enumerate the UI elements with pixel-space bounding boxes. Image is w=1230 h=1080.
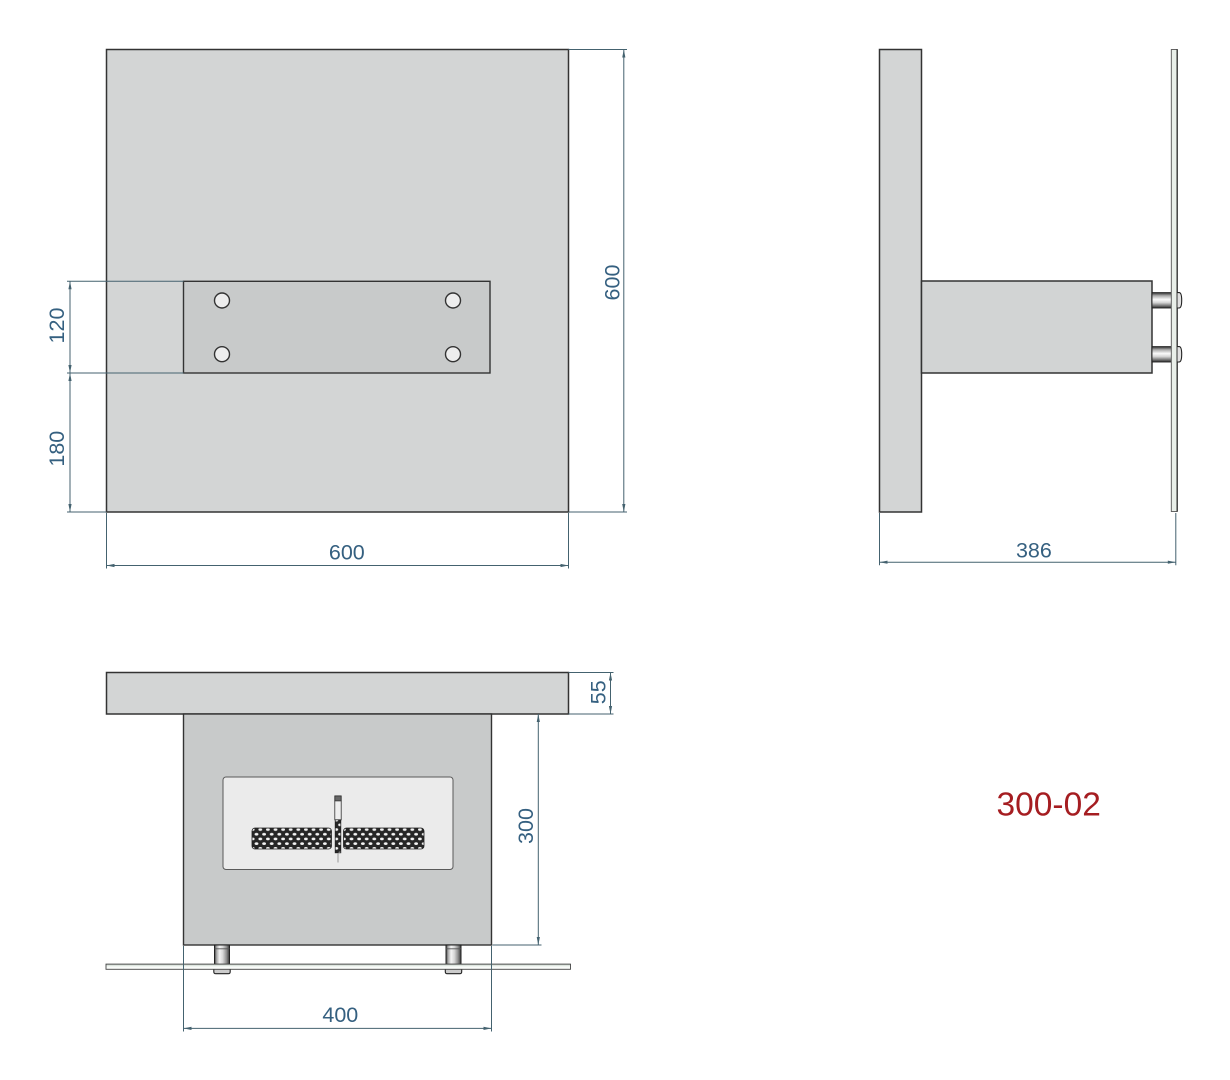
svg-text:386: 386 — [1016, 539, 1052, 563]
svg-text:120: 120 — [45, 308, 69, 344]
svg-text:400: 400 — [322, 1003, 358, 1027]
svg-text:600: 600 — [601, 265, 625, 301]
svg-text:55: 55 — [586, 680, 610, 704]
svg-text:180: 180 — [45, 431, 69, 467]
svg-text:600: 600 — [329, 540, 365, 564]
svg-text:300: 300 — [514, 808, 538, 844]
svg-text:300-02: 300-02 — [997, 787, 1101, 824]
